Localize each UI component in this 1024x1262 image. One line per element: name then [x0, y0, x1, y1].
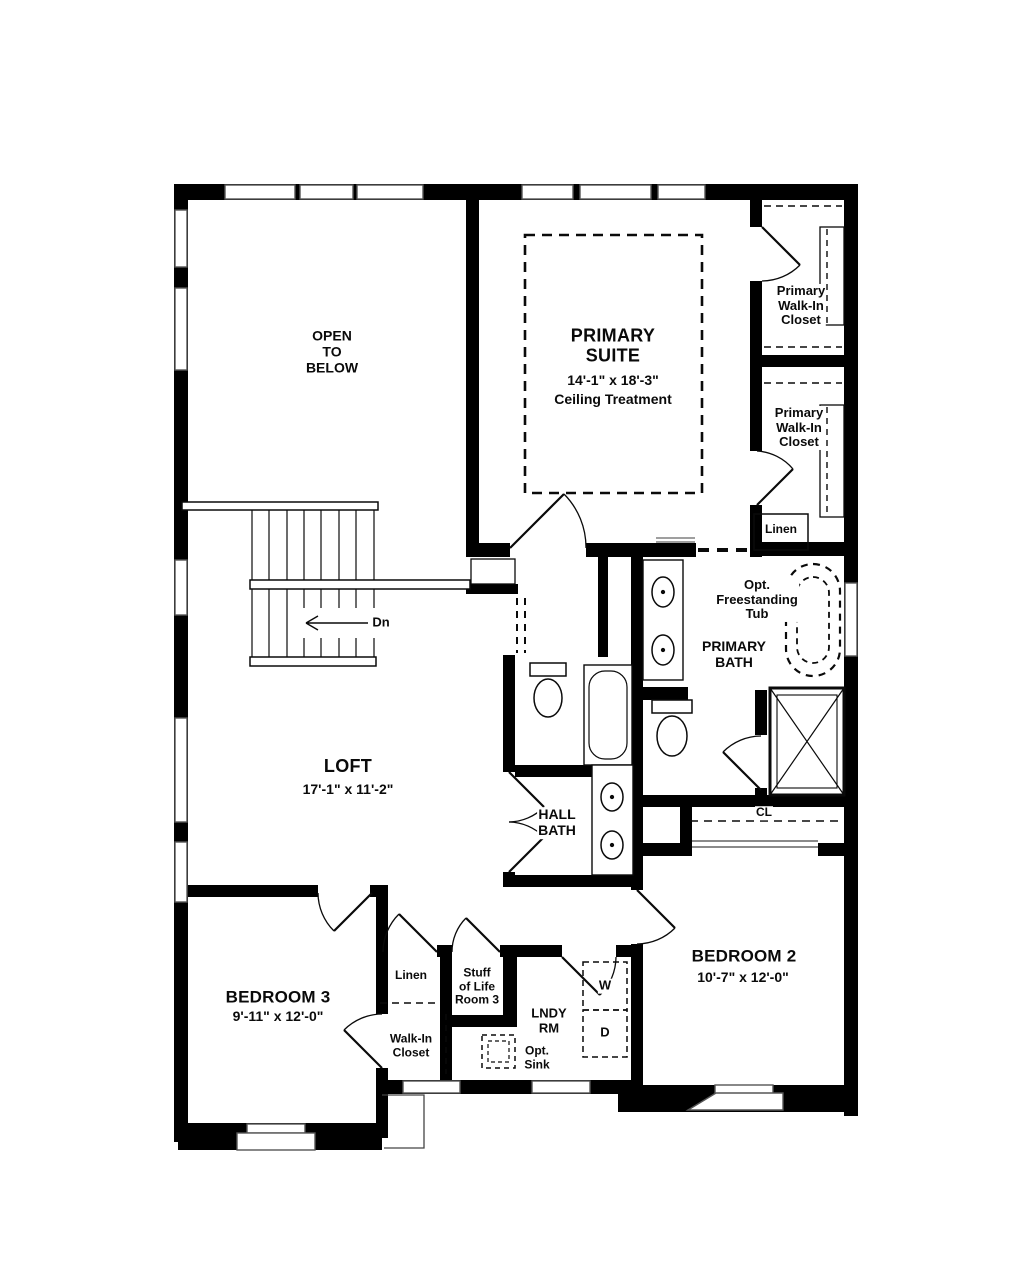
floor-plan-drawing [0, 0, 1024, 1262]
label-primary-suite-note: Ceiling Treatment [553, 392, 672, 408]
wall-wc-east-a [755, 690, 767, 735]
label-stuff-of-life: Stuff of Life Room 3 [454, 967, 500, 1008]
door-bedroom3 [318, 893, 372, 931]
window-laundry-bottom [532, 1081, 590, 1093]
label-linen-lower: Linen [394, 969, 428, 983]
stair-treads-upper [252, 510, 374, 580]
label-laundry: LNDY RM [530, 1006, 567, 1035]
hall-bath-vanity [592, 765, 633, 875]
door-walkin-closet [344, 1014, 382, 1068]
wall-hallbath-divider [515, 765, 593, 777]
primary-bath-toilet [652, 700, 692, 756]
wall-niche-bottom [466, 584, 518, 594]
window-bath-right [845, 583, 857, 656]
window-closet-bottom [403, 1081, 460, 1093]
hall-bath-toilet [530, 663, 566, 717]
wall-wc-north [643, 687, 688, 700]
label-loft-dims: 17'-1" x 11'-2" [302, 782, 395, 798]
porch-step-line [382, 1095, 424, 1148]
stair-rail-mid [250, 580, 470, 589]
label-dryer: D [599, 1026, 610, 1041]
stairs [182, 502, 470, 666]
label-bedroom3-dims: 9'-11" x 12'-0" [232, 1009, 325, 1025]
label-primary-suite: PRIMARY SUITE [570, 326, 656, 367]
optional-sink [482, 1035, 515, 1068]
wall-suite-south-a [466, 543, 510, 557]
hallway-cased-opening [517, 598, 525, 653]
wall-bedroom2-top-b [818, 843, 844, 856]
hall-niche [471, 559, 515, 584]
wall-suite-west [466, 184, 479, 557]
label-open-to-below: OPEN TO BELOW [305, 328, 359, 375]
wall-suite-south-b [586, 543, 696, 557]
wall-bath-south [643, 795, 844, 807]
door-bedroom2 [637, 890, 675, 944]
primary-bath-shower [770, 688, 844, 795]
window-bedroom3-bottom [247, 1124, 305, 1133]
wall-bedroom2-top-a [630, 843, 692, 856]
label-stairs-down: Dn [371, 616, 390, 631]
door-wic-lower [757, 451, 793, 505]
label-opt-sink: Opt. Sink [523, 1044, 550, 1071]
wall-linen-bottom [750, 542, 844, 556]
label-primary-suite-dims: 14'-1" x 18'-3" [566, 373, 660, 389]
label-washer: W [598, 979, 612, 994]
wall-bedroom2-west [631, 944, 643, 1090]
wall-wic-divider [752, 355, 844, 367]
freestanding-tub-inner [797, 577, 829, 663]
primary-bath-vanity [643, 560, 683, 680]
hall-bath-tub [584, 665, 632, 765]
label-cl-closet: CL [755, 806, 773, 820]
wall-wic-west-a [750, 184, 762, 227]
wall-hallway-east [598, 557, 608, 657]
stair-rail-top [182, 502, 378, 510]
label-primary-bath: PRIMARY BATH [701, 639, 767, 671]
label-bedroom2-dims: 10'-7" x 12'-0" [696, 970, 790, 986]
wall-hallbath-west-a [503, 655, 515, 772]
label-wic-lower: Primary Walk-In Closet [774, 406, 824, 450]
door-water-closet [723, 736, 761, 790]
wall-hallbath-south [503, 875, 643, 887]
cl-closet-track [692, 841, 818, 847]
label-bedroom2: BEDROOM 2 [691, 946, 798, 965]
label-wic-upper: Primary Walk-In Closet [776, 284, 826, 328]
label-linen-upper: Linen [764, 523, 798, 537]
wall-bedroom3-top [176, 885, 318, 897]
floor-plan: OPEN TO BELOW PRIMARY SUITE 14'-1" x 18'… [0, 0, 1024, 1262]
stair-rail-bottom [250, 657, 376, 666]
door-primary-suite [510, 494, 586, 548]
wall-cl-west [680, 807, 692, 843]
wall-stuff-south [452, 1015, 517, 1027]
suite-ledge [656, 538, 695, 542]
label-hall-bath: HALL BATH [537, 807, 577, 839]
bedroom3-bay-detail [237, 1133, 315, 1150]
door-wic-upper [762, 227, 800, 281]
label-loft: LOFT [323, 756, 373, 776]
door-stuff-room [452, 918, 500, 952]
label-freestanding-tub: Opt. Freestanding Tub [715, 578, 799, 622]
label-bedroom3: BEDROOM 3 [225, 987, 332, 1006]
label-walkin-closet: Walk-In Closet [389, 1032, 433, 1059]
door-linen-lower [383, 914, 437, 952]
